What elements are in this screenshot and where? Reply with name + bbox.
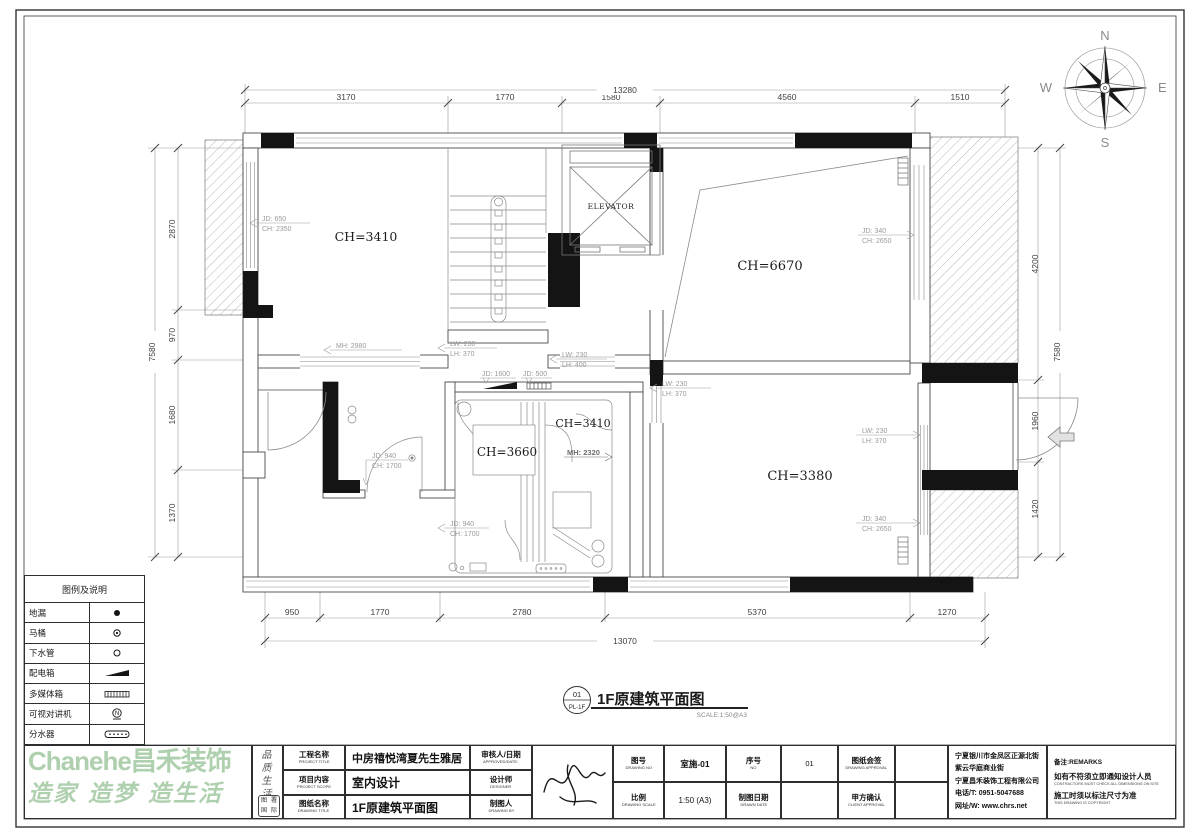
- ann-mh2980: MH: 2980: [336, 343, 366, 350]
- media-box-icon: [102, 688, 132, 700]
- title-bubble-number: 01: [573, 690, 581, 699]
- void-outline: [665, 156, 908, 357]
- elevator-label: ELEVATOR: [588, 202, 635, 211]
- ann-ch1700-2: CH: 1700: [450, 531, 480, 538]
- legend-item-label: 多媒体箱: [25, 684, 90, 703]
- legend-item-label: 马桶: [25, 623, 90, 642]
- dim-left-3: 1680: [167, 405, 177, 424]
- compass-south-label: S: [1101, 135, 1110, 150]
- ann-lw230-4: LW: 230: [862, 428, 888, 435]
- vertical-slogan: 品质生活: [257, 749, 272, 801]
- remarks-label: 备注:REMARKS: [1054, 758, 1102, 768]
- project-scope-label: 项目内容: [299, 776, 329, 784]
- approved-label: 审核人/日期: [481, 751, 521, 759]
- dim-right-2: 1960: [1030, 411, 1040, 430]
- drawing-title-group: 01 PL-1F 1F原建筑平面图 SCALE:1:50@A3: [564, 687, 749, 720]
- ann-lw230-1: LW: 230: [450, 341, 476, 348]
- dim-left-4: 1370: [167, 503, 177, 522]
- bathroom-details: [348, 406, 422, 492]
- compass-west-label: W: [1040, 80, 1053, 95]
- designer-signature: [534, 747, 612, 817]
- dim-top-2: 1770: [496, 92, 515, 102]
- legend-row: 分水器: [25, 725, 144, 744]
- drawing-no-value: 室施-01: [680, 758, 709, 770]
- dim-bottom-total: 13070: [613, 636, 637, 646]
- drawing-sheet: 3170 1770 1580 4560 1510 13280 950 1770 …: [0, 0, 1200, 833]
- dim-top-4: 4560: [778, 92, 797, 102]
- ann-lh370-1: LH: 370: [450, 351, 475, 358]
- room-label-1: CH=3410: [335, 229, 398, 244]
- scale-value: 1:50 (A3): [679, 796, 712, 805]
- dim-left-2: 970: [167, 328, 177, 342]
- legend-row: 多媒体箱: [25, 684, 144, 704]
- drawing-title-label: 图纸名称: [299, 800, 329, 808]
- project-scope-value: 室内设计: [352, 774, 400, 791]
- drawing-approval-label: 图纸会签: [852, 757, 882, 765]
- dim-right-total: 7580: [1052, 342, 1062, 361]
- dim-bottom-5: 1270: [938, 607, 957, 617]
- dim-bottom-1: 950: [285, 607, 299, 617]
- serial-no-label: 序号: [746, 757, 761, 765]
- scale-label: 比例: [631, 794, 646, 802]
- compass-rose-icon: N S W E: [1040, 28, 1167, 150]
- legend-row: 地漏: [25, 603, 144, 623]
- compass-east-label: E: [1158, 80, 1167, 95]
- legend-row: 可视对讲机 N: [25, 704, 144, 724]
- legend-row: 配电箱: [25, 664, 144, 684]
- elevator-shaft: [562, 145, 660, 255]
- legend-title: 图例及说明: [25, 576, 144, 603]
- dim-right-3: 1420: [1030, 499, 1040, 518]
- drawing-scale-text: SCALE:1:50@A3: [697, 712, 748, 719]
- company-website: 网址/W: www.chrs.net: [955, 801, 1027, 814]
- room-label-5: CH=3380: [767, 469, 832, 484]
- remarks-block: 备注:REMARKS 如有不符须立即通知设计人员 CONTRACTORS MUS…: [1047, 745, 1176, 819]
- company-address-2: 紫云华庭商业街: [955, 763, 1004, 776]
- company-info: 宁夏银川市金凤区正源北街 紫云华庭商业街 宁夏昌禾装饰工程有限公司 电话/T: …: [948, 745, 1047, 819]
- drawn-by-label: 制图人: [490, 800, 513, 808]
- ann-mh2320: MH: 2320: [567, 448, 600, 457]
- drawing-no-label: 图号: [631, 757, 646, 765]
- legend-table: 图例及说明 地漏 马桶 下水管 配电箱 多媒体箱 可视对讲机 N 分水器: [24, 575, 145, 745]
- dim-bottom-3: 2780: [513, 607, 532, 617]
- title-bubble-code: PL-1F: [569, 705, 586, 711]
- ann-jd340-2: JD: 340: [862, 516, 886, 523]
- legend-row: 马桶: [25, 623, 144, 643]
- company-seal: 图署 国际: [258, 795, 280, 817]
- drain-pipe-icon: [102, 647, 132, 659]
- dim-bottom-4: 5370: [748, 607, 767, 617]
- ann-ch2650-1: CH: 2650: [862, 238, 892, 245]
- ann-ch1700-1: CH: 1700: [372, 463, 402, 470]
- project-title-value: 中房禧悦湾夏先生雅居: [352, 750, 462, 766]
- watermark-zone: [24, 745, 252, 819]
- dim-top-5: 1510: [951, 92, 970, 102]
- ann-jd340-1: JD: 340: [862, 228, 886, 235]
- ann-jd1600: JD: 1600: [482, 371, 510, 378]
- room-label-4: CH=3410: [555, 417, 610, 430]
- dim-bottom-2: 1770: [371, 607, 390, 617]
- legend-item-label: 下水管: [25, 644, 90, 663]
- ann-jd940-2: JD: 940: [450, 521, 474, 528]
- toilet-icon: [102, 627, 132, 639]
- room-label-3: CH=3660: [477, 445, 537, 459]
- legend-row: 下水管: [25, 644, 144, 664]
- ann-lh370-4: LH: 370: [862, 438, 887, 445]
- client-signature-cell: [895, 782, 948, 819]
- ann-lw230-3: LW: 230: [662, 381, 688, 388]
- designer-label: 设计师: [490, 776, 513, 784]
- serial-no-value: 01: [805, 759, 813, 768]
- ann-lw230-2: LW: 230: [562, 352, 588, 359]
- entry-arrow-icon: [1048, 427, 1074, 447]
- drawn-date-cell: [781, 782, 838, 819]
- dim-right-1: 4200: [1030, 254, 1040, 273]
- ann-jd650: JD: 650: [262, 216, 286, 223]
- client-approval-label: 甲方确认: [852, 794, 882, 802]
- staircase: [448, 148, 546, 330]
- project-title-label: 工程名称: [299, 751, 329, 759]
- ann-jd500: JD: 500: [523, 371, 547, 378]
- legend-item-label: 可视对讲机: [25, 704, 90, 723]
- legend-item-label: 地漏: [25, 603, 90, 622]
- legend-item-label: 配电箱: [25, 664, 90, 683]
- ann-lh400: LH: 400: [562, 362, 587, 369]
- approval-signature-cell: [895, 745, 948, 782]
- remarks-line-1: 如有不符须立即通知设计人员: [1054, 772, 1152, 781]
- room-label-2: CH=6670: [737, 259, 802, 274]
- dim-top-1: 3170: [337, 92, 356, 102]
- legend-item-label: 分水器: [25, 725, 90, 744]
- power-box-icon: [102, 667, 132, 679]
- floor-drain-icon: [102, 607, 132, 619]
- remarks-line-2: 施工时须以标注尺寸为准: [1054, 791, 1137, 800]
- dim-left-1: 2870: [167, 219, 177, 238]
- dim-top-total: 13280: [613, 85, 637, 95]
- floor-plan-svg: 3170 1770 1580 4560 1510 13280 950 1770 …: [0, 0, 1200, 833]
- svg-text:N: N: [115, 711, 119, 717]
- dim-left-total: 7580: [147, 342, 157, 361]
- company-address-1: 宁夏银川市金凤区正源北街: [955, 751, 1039, 764]
- drawing-name-value: 1F原建筑平面图: [352, 799, 438, 816]
- video-intercom-icon: N: [102, 707, 132, 721]
- ann-jd940-1: JD: 940: [372, 453, 396, 460]
- company-phone: 电话/T: 0951-5047688: [955, 788, 1024, 801]
- drawing-title-text: 1F原建筑平面图: [597, 690, 705, 708]
- ann-ch2350: CH: 2350: [262, 226, 292, 233]
- company-name: 宁夏昌禾装饰工程有限公司: [955, 776, 1039, 789]
- water-manifold-icon: [102, 728, 132, 740]
- drawn-date-label: 制图日期: [739, 794, 769, 802]
- ann-ch2650-2: CH: 2650: [862, 526, 892, 533]
- ann-lh370-3: LH: 370: [662, 391, 687, 398]
- compass-north-label: N: [1100, 28, 1109, 43]
